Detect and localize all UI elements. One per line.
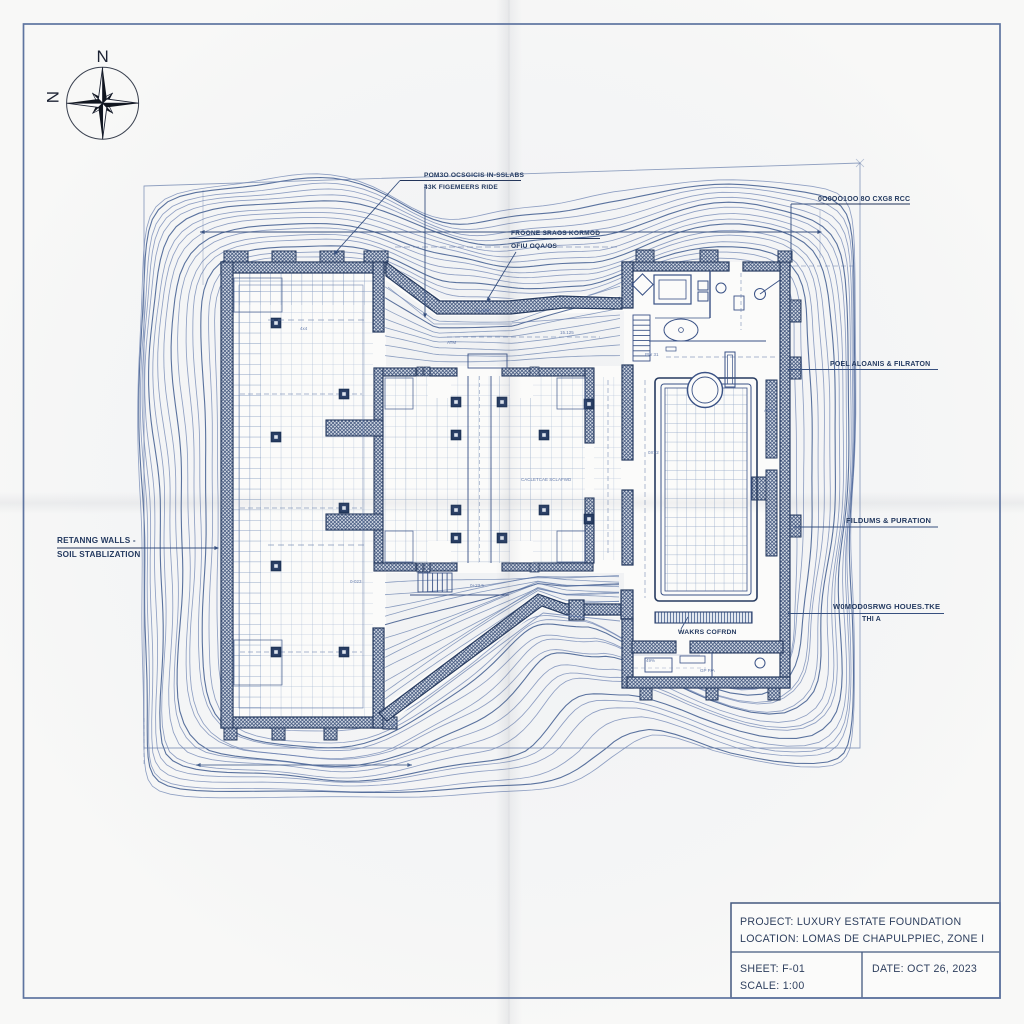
svg-text:LOCATION: LOMAS DE CHAPULPPIEC: LOCATION: LOMAS DE CHAPULPPIEC, ZONE I xyxy=(740,933,984,945)
svg-text:CACLETCAE SCLAFWD: CACLETCAE SCLAFWD xyxy=(521,477,572,482)
svg-text:0O0OO1OO 8O CXG8 RCC: 0O0OO1OO 8O CXG8 RCC xyxy=(818,196,910,203)
svg-text:GP P/A: GP P/A xyxy=(700,668,715,673)
svg-text:SHEET: F-01: SHEET: F-01 xyxy=(740,963,805,975)
svg-text:N: N xyxy=(96,47,108,66)
svg-text:N: N xyxy=(43,91,62,103)
svg-text:PROJECT: LUXURY ESTATE FOUNDAT: PROJECT: LUXURY ESTATE FOUNDATION xyxy=(740,916,961,928)
svg-text:0-023: 0-023 xyxy=(350,579,362,584)
svg-text:RETANNG WALLS -: RETANNG WALLS - xyxy=(57,536,136,545)
svg-text:43K FIGEMEERS RIDE: 43K FIGEMEERS RIDE xyxy=(424,184,498,191)
svg-text:A.05: A.05 xyxy=(764,408,774,413)
svg-text:POEL ALOANIS & FILRATON: POEL ALOANIS & FILRATON xyxy=(830,361,930,368)
svg-text:ATM: ATM xyxy=(447,340,456,345)
svg-text:W0MOD0SRWG HOUES.TKE: W0MOD0SRWG HOUES.TKE xyxy=(833,602,940,611)
svg-text:DATE: OCT 26, 2023: DATE: OCT 26, 2023 xyxy=(872,963,977,975)
svg-text:15.125: 15.125 xyxy=(560,330,574,335)
svg-text:0XT2: 0XT2 xyxy=(648,450,659,455)
svg-text:FILDUMS & PURATION: FILDUMS & PURATION xyxy=(846,516,931,525)
svg-text:THI A: THI A xyxy=(862,616,881,623)
svg-text:49%: 49% xyxy=(646,658,655,663)
svg-text:FROONE SRAOS KORMOD: FROONE SRAOS KORMOD xyxy=(511,230,600,237)
svg-text:WAKRS COFRDN: WAKRS COFRDN xyxy=(678,629,737,636)
svg-text:4x4: 4x4 xyxy=(300,326,308,331)
svg-text:SCALE: 1:00: SCALE: 1:00 xyxy=(740,980,805,992)
svg-text:SOIL STABLIZATION: SOIL STABLIZATION xyxy=(57,550,140,559)
svg-text:44-43S: 44-43S xyxy=(475,308,490,313)
svg-text:PW 31: PW 31 xyxy=(645,352,659,357)
svg-text:0+23.5: 0+23.5 xyxy=(470,583,484,588)
